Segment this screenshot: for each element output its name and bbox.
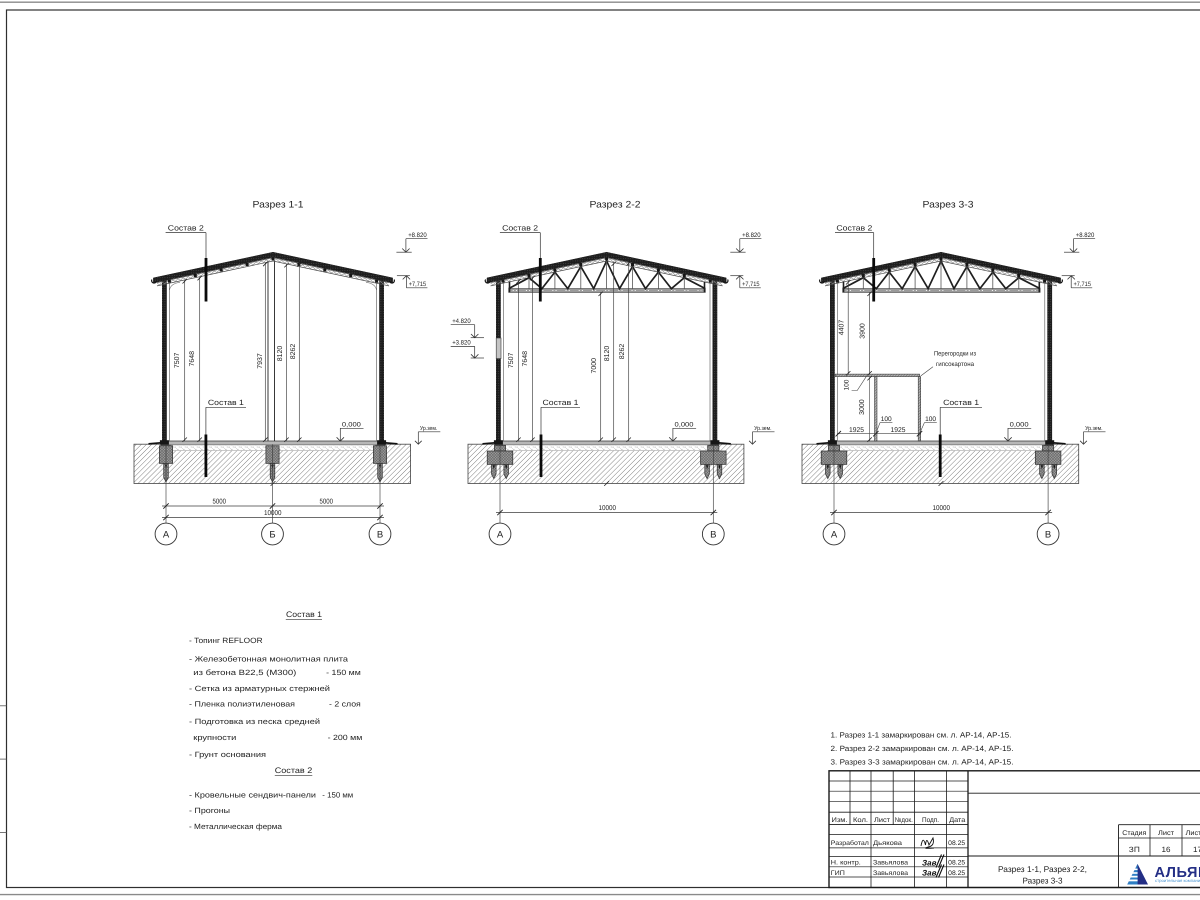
svg-text:Завьялова: Завьялова — [873, 860, 908, 867]
svg-text:крупности: крупности — [193, 733, 236, 742]
svg-text:+4.820: +4.820 — [452, 318, 471, 325]
svg-text:Состав 1: Состав 1 — [543, 398, 579, 407]
svg-text:7648: 7648 — [522, 351, 529, 367]
svg-text:7648: 7648 — [189, 351, 196, 367]
svg-text:- Металлическая ферма: - Металлическая ферма — [189, 822, 283, 831]
svg-text:10000: 10000 — [264, 510, 282, 517]
svg-text:- Пленка полиэтиленовая: - Пленка полиэтиленовая — [189, 700, 295, 709]
svg-text:10000: 10000 — [599, 505, 617, 512]
svg-text:5000: 5000 — [320, 498, 334, 505]
svg-text:гипсокартона: гипсокартона — [936, 361, 974, 368]
svg-text:- 150 мм: - 150 мм — [326, 668, 361, 677]
svg-text:8120: 8120 — [604, 346, 611, 362]
svg-text:8120: 8120 — [277, 346, 284, 362]
svg-text:Б: Б — [269, 529, 275, 540]
svg-text:В: В — [377, 529, 383, 540]
svg-text:7937: 7937 — [257, 353, 264, 369]
svg-text:7507: 7507 — [174, 353, 181, 369]
svg-text:В: В — [710, 529, 716, 540]
svg-text:строительная компания: строительная компания — [1155, 878, 1200, 883]
svg-text:0,000: 0,000 — [342, 422, 362, 429]
svg-text:- Прогоны: - Прогоны — [189, 806, 230, 815]
svg-text:А: А — [831, 529, 838, 540]
svg-text:1. Разрез 1-1 замаркирован см.: 1. Разрез 1-1 замаркирован см. л. АР-14,… — [831, 731, 1012, 740]
svg-text:Кол.: Кол. — [853, 817, 868, 824]
svg-text:+7,715: +7,715 — [1074, 281, 1092, 288]
svg-text:2. Разрез 2-2 замаркирован см.: 2. Разрез 2-2 замаркирован см. л. АР-14,… — [831, 744, 1014, 753]
svg-text:100: 100 — [925, 416, 936, 423]
svg-text:- Сетка из арматурных стержней: - Сетка из арматурных стержней — [189, 684, 330, 693]
svg-text:100: 100 — [881, 416, 892, 423]
svg-text:0,000: 0,000 — [1010, 422, 1030, 429]
svg-text:- 200 мм: - 200 мм — [328, 733, 363, 742]
svg-text:5000: 5000 — [213, 498, 227, 505]
svg-text:Перегородки из: Перегородки из — [934, 350, 976, 357]
svg-text:1925: 1925 — [891, 427, 906, 434]
svg-text:Состав 2: Состав 2 — [168, 223, 204, 232]
svg-text:Разрез 3-3: Разрез 3-3 — [923, 200, 974, 211]
svg-text:из бетона В22,5 (М300): из бетона В22,5 (М300) — [193, 668, 297, 677]
svg-text:1925: 1925 — [849, 427, 864, 434]
svg-text:Состав 1: Состав 1 — [286, 610, 323, 619]
svg-text:- 150 мм: - 150 мм — [322, 790, 353, 799]
svg-text:Лист: Лист — [874, 817, 890, 824]
svg-text:3900: 3900 — [860, 323, 867, 339]
svg-text:+7,715: +7,715 — [409, 281, 427, 288]
svg-text:16: 16 — [1162, 845, 1171, 854]
svg-text:Состав 2: Состав 2 — [836, 223, 872, 232]
svg-text:Состав 2: Состав 2 — [502, 223, 538, 232]
svg-text:Состав 1: Состав 1 — [208, 398, 244, 407]
svg-text:Лист: Лист — [1158, 830, 1174, 837]
svg-text:+8.820: +8.820 — [742, 232, 761, 239]
svg-text:+8.820: +8.820 — [1076, 232, 1095, 239]
svg-text:- 2 слоя: - 2 слоя — [329, 700, 361, 709]
svg-text:0,000: 0,000 — [675, 422, 695, 429]
svg-text:- Топинг REFLOOR: - Топинг REFLOOR — [189, 636, 263, 645]
svg-text:- Железобетонная монолитная п: - Железобетонная монолитная плита — [189, 655, 349, 664]
svg-text:Изм.: Изм. — [832, 817, 848, 824]
svg-text:А: А — [163, 529, 170, 540]
svg-text:Дата: Дата — [949, 817, 965, 824]
svg-text:ГИП: ГИП — [831, 870, 845, 877]
svg-text:7000: 7000 — [591, 358, 598, 374]
svg-text:Состав 1: Состав 1 — [943, 398, 979, 407]
svg-text:100: 100 — [844, 379, 851, 390]
svg-text:Листов: Листов — [1186, 830, 1200, 837]
svg-text:08.25: 08.25 — [948, 870, 965, 877]
svg-text:8262: 8262 — [619, 344, 626, 360]
svg-text:3000: 3000 — [859, 399, 866, 415]
svg-text:Завьялова: Завьялова — [873, 870, 908, 877]
svg-text:Разрез 1-1, Разрез 2-2,: Разрез 1-1, Разрез 2-2, — [998, 864, 1087, 874]
svg-text:Ур.зем.: Ур.зем. — [1085, 426, 1103, 432]
svg-text:ЗП: ЗП — [1129, 845, 1140, 854]
svg-text:- Кровельные сендвич-панели: - Кровельные сендвич-панели — [189, 790, 316, 799]
svg-text:Дьякова: Дьякова — [873, 840, 902, 847]
svg-text:Разрез 3-3: Разрез 3-3 — [1023, 876, 1063, 886]
svg-text:08.25: 08.25 — [948, 860, 965, 867]
svg-text:3. Разрез 3-3 замаркирован см.: 3. Разрез 3-3 замаркирован см. л. АР-14,… — [831, 758, 1014, 767]
svg-text:Подп.: Подп. — [922, 817, 939, 824]
svg-text:10000: 10000 — [933, 505, 951, 512]
svg-text:08.25: 08.25 — [948, 840, 965, 847]
svg-text:+8.820: +8.820 — [408, 232, 427, 239]
svg-text:- Грунт основания: - Грунт основания — [189, 750, 266, 759]
svg-text:+3.820: +3.820 — [452, 340, 471, 347]
svg-text:А: А — [497, 529, 504, 540]
svg-text:Зав: Зав — [922, 858, 937, 867]
svg-text:7507: 7507 — [508, 353, 515, 369]
svg-text:Разрез 2-2: Разрез 2-2 — [590, 200, 641, 211]
svg-text:Зав: Зав — [922, 869, 937, 878]
svg-text:17: 17 — [1193, 845, 1200, 854]
svg-text:Состав 2: Состав 2 — [275, 766, 313, 775]
svg-text:№док.: №док. — [895, 817, 913, 824]
svg-text:В: В — [1045, 529, 1051, 540]
svg-text:4407: 4407 — [838, 320, 845, 336]
svg-text:Ур.зем.: Ур.зем. — [420, 426, 438, 432]
svg-text:- Подготовка из песка средней: - Подготовка из песка средней — [189, 717, 320, 726]
svg-text:+7,715: +7,715 — [742, 281, 760, 288]
svg-text:Разработал: Разработал — [831, 840, 869, 847]
svg-text:8262: 8262 — [290, 344, 297, 360]
svg-text:Стадия: Стадия — [1122, 830, 1146, 837]
svg-text:Н. контр.: Н. контр. — [831, 860, 861, 867]
svg-text:Ур.зем.: Ур.зем. — [754, 426, 772, 432]
svg-text:Разрез 1-1: Разрез 1-1 — [253, 200, 304, 211]
